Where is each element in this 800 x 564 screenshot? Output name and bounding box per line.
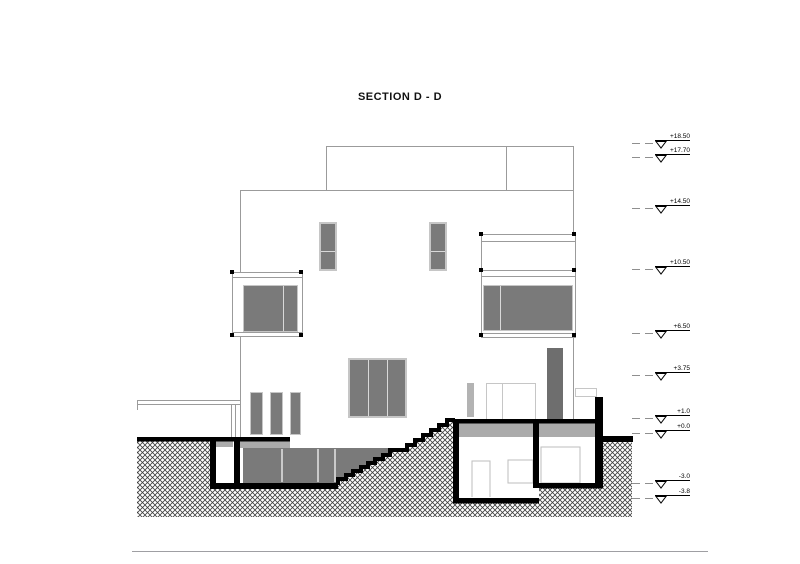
section-drawing-sheet: SECTION D - D xyxy=(0,0,800,564)
level-line xyxy=(655,140,690,141)
level-triangle-icon xyxy=(655,155,667,163)
floor-cut xyxy=(210,483,338,489)
right-basement-room-a xyxy=(459,437,533,498)
level-line xyxy=(655,205,690,206)
wall-cut xyxy=(595,397,603,488)
level-label: +1.0 xyxy=(652,408,690,415)
elevation-marker: +0.0 xyxy=(632,424,692,440)
slab-left-room xyxy=(215,441,233,447)
level-line xyxy=(655,266,690,267)
slab-left-terrace xyxy=(240,441,290,448)
floor-cut xyxy=(539,483,603,489)
level-label: -3.8 xyxy=(652,488,690,495)
level-line xyxy=(655,430,690,431)
level-dash-line xyxy=(632,483,655,484)
left-basement-room xyxy=(216,447,234,483)
level-line xyxy=(655,154,690,155)
level-label: +18.50 xyxy=(652,133,690,140)
level-dash-line xyxy=(632,333,655,334)
level-dash-line xyxy=(632,269,655,270)
wall-cut xyxy=(533,423,539,488)
level-triangle-icon xyxy=(655,496,667,504)
level-dash-line xyxy=(632,498,655,499)
ground-line-left xyxy=(137,437,290,442)
level-label: +14.50 xyxy=(652,198,690,205)
elevation-marker: +10.50 xyxy=(632,260,692,276)
level-dash-line xyxy=(632,375,655,376)
level-line xyxy=(655,415,690,416)
level-label: +17.70 xyxy=(652,147,690,154)
elevation-marker: +3.75 xyxy=(632,366,692,382)
elevation-marker: +17.70 xyxy=(632,148,692,164)
wall-cut xyxy=(210,441,216,489)
level-line xyxy=(655,480,690,481)
wall-cut xyxy=(234,441,240,489)
level-dash-line xyxy=(632,143,655,144)
level-line xyxy=(655,330,690,331)
ground-line-right xyxy=(603,436,633,442)
slab-top-line xyxy=(453,419,603,424)
level-label: +0.0 xyxy=(652,423,690,430)
level-line xyxy=(655,372,690,373)
level-triangle-icon xyxy=(655,267,667,275)
level-dash-line xyxy=(632,433,655,434)
level-line xyxy=(655,495,690,496)
slab-basement-left xyxy=(459,423,533,437)
level-label: +3.75 xyxy=(652,365,690,372)
level-triangle-icon xyxy=(655,331,667,339)
level-triangle-icon xyxy=(655,206,667,214)
floor-cut xyxy=(453,498,539,504)
level-dash-line xyxy=(632,208,655,209)
elevation-marker: +6.50 xyxy=(632,324,692,340)
level-label: -3.0 xyxy=(652,473,690,480)
level-triangle-icon xyxy=(655,373,667,381)
right-basement-room-b xyxy=(539,437,595,483)
level-dash-line xyxy=(632,157,655,158)
level-label: +10.50 xyxy=(652,259,690,266)
slab-basement-right xyxy=(539,423,595,437)
elevation-marker: -3.8 xyxy=(632,489,692,505)
level-label: +6.50 xyxy=(652,323,690,330)
elevation-marker: +14.50 xyxy=(632,199,692,215)
wall-cut xyxy=(453,423,459,504)
sheet-bottom-rule xyxy=(132,551,708,552)
level-dash-line xyxy=(632,418,655,419)
level-triangle-icon xyxy=(655,431,667,439)
